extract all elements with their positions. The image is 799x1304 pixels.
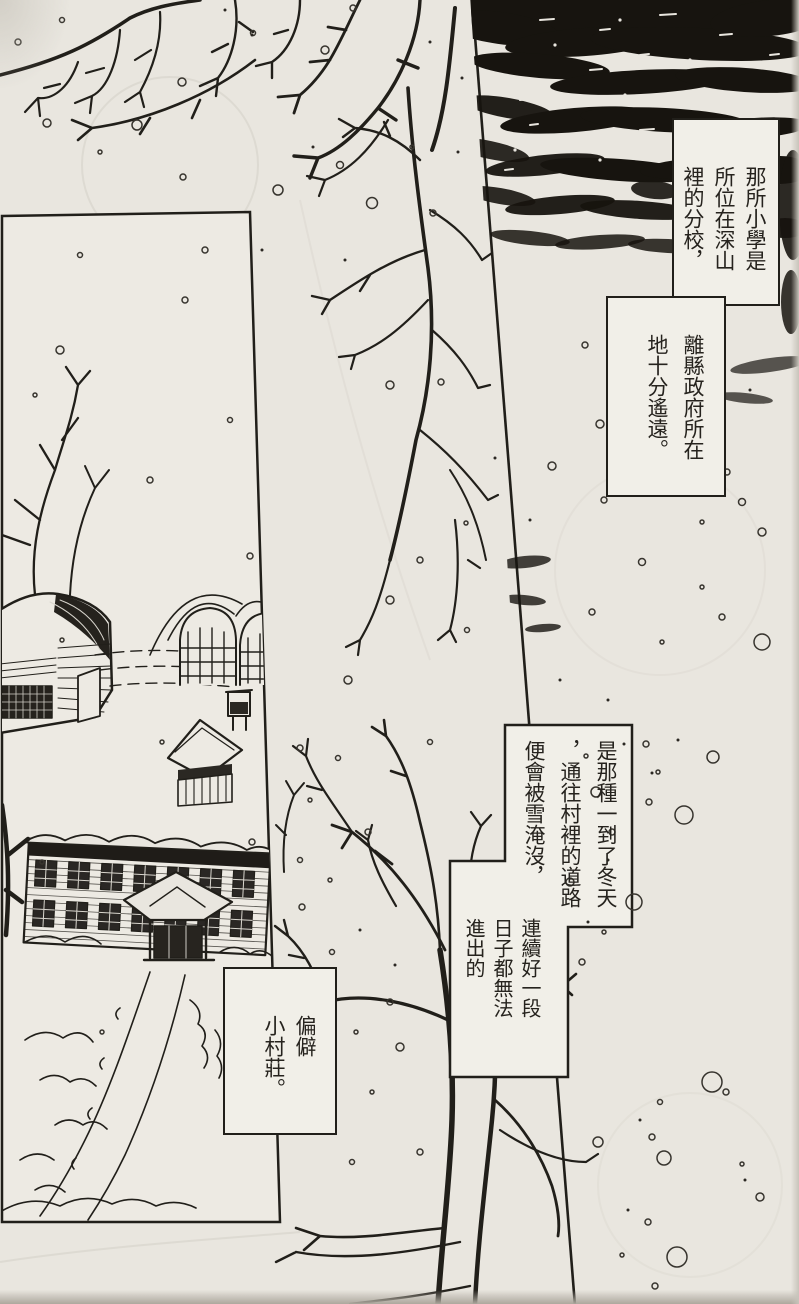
manga-page: 那所小學是 所位在深山 裡的分校， 離縣政府所在 地十分遙遠。 是那種一到了冬天… <box>0 0 799 1304</box>
caption-2-text: 離縣政府所在 地十分遙遠。 <box>645 334 705 460</box>
caption-box-1: 那所小學是 所位在深山 裡的分校， <box>672 118 780 306</box>
caption-3-upper-text: 是那種一到了冬天 ，通往村裡的道路 便會被雪淹沒， <box>516 740 624 920</box>
caption-1-text: 那所小學是 所位在深山 裡的分校， <box>681 166 767 271</box>
caption-box-4: 偏僻 小村莊。 <box>223 967 337 1135</box>
small-tree <box>276 781 304 872</box>
caption-4-text: 偏僻 小村莊。 <box>262 1015 317 1099</box>
barn <box>0 593 112 733</box>
caption-3-lower-text: 連續好一段 日子都無法 進出的 <box>460 918 544 1048</box>
caption-box-2: 離縣政府所在 地十分遙遠。 <box>606 296 726 497</box>
